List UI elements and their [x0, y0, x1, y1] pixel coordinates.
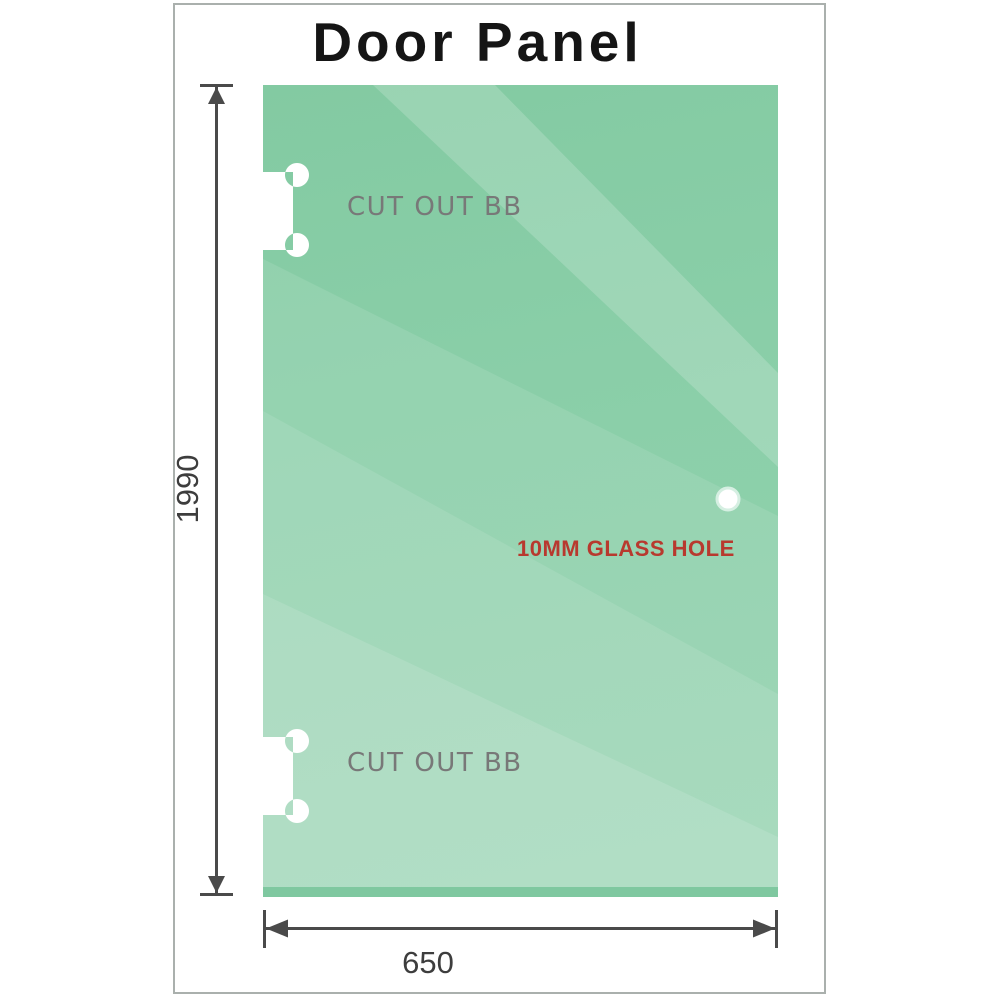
dimension-graphics [0, 0, 1000, 1000]
width-dimension-label: 650 [368, 946, 488, 980]
diagram-canvas: Door Panel CUT OUT BB CUT OUT BB 10MM GL… [0, 0, 1000, 1000]
height-dimension-label: 1990 [172, 429, 204, 549]
width-dimension-line [265, 910, 777, 948]
